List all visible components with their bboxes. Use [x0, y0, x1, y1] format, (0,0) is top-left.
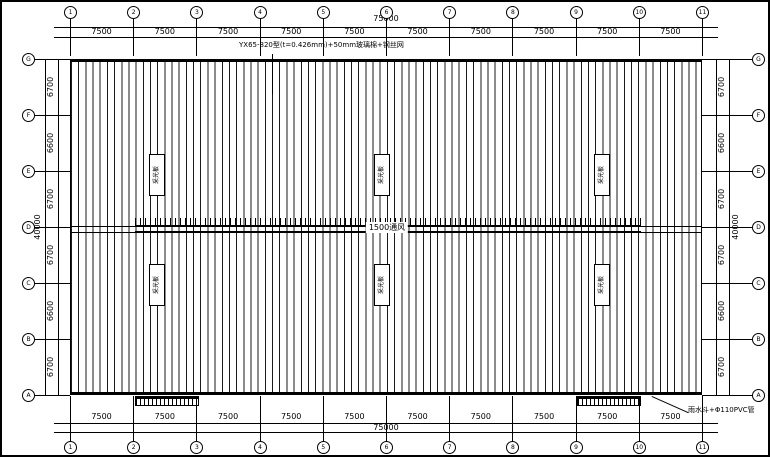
extension-line: [323, 18, 324, 56]
extension-line: [702, 227, 752, 228]
extension-line: [260, 18, 261, 56]
grid-bubble-right: F: [752, 109, 765, 122]
segment-dimension-right: 6700: [718, 77, 726, 97]
skylight-marker: 采光板: [149, 264, 165, 306]
extension-line: [702, 396, 703, 441]
segment-dimension-left: 6700: [47, 357, 55, 377]
skylight-marker-label: 采光板: [154, 276, 160, 294]
extension-line: [70, 18, 71, 56]
bay-dimension-bottom: 7500: [218, 413, 238, 421]
segment-dimension-left: 6600: [47, 301, 55, 321]
grid-bubble-bottom: 10: [633, 441, 646, 454]
bay-dimension-top: 7500: [534, 28, 554, 36]
grid-bubble-left: F: [22, 109, 35, 122]
ridge-vent-label: 1500通风: [366, 222, 408, 233]
grid-bubble-left: B: [22, 333, 35, 346]
roof-panel-area: 1500通风: [70, 59, 702, 395]
extension-line: [323, 396, 324, 441]
grid-bubble-right: G: [752, 53, 765, 66]
grid-bubble-left: A: [22, 389, 35, 402]
bay-dimension-top: 7500: [155, 28, 175, 36]
segment-dimension-left: 6700: [47, 77, 55, 97]
segment-dimension-right: 6600: [718, 133, 726, 153]
extension-line: [512, 396, 513, 441]
grid-bubble-right: C: [752, 277, 765, 290]
grid-bubble-left: G: [22, 53, 35, 66]
segment-dimension-right: 6600: [718, 301, 726, 321]
grid-bubble-bottom: 6: [380, 441, 393, 454]
grid-bubble-top: 10: [633, 6, 646, 19]
extension-line: [449, 396, 450, 441]
segment-dimension-right: 6700: [718, 245, 726, 265]
extension-line: [576, 18, 577, 56]
extension-line: [449, 18, 450, 56]
extension-line: [576, 396, 577, 441]
skylight-marker-label: 采光板: [154, 166, 160, 184]
grid-bubble-top: 6: [380, 6, 393, 19]
bay-dimension-bottom: 7500: [155, 413, 175, 421]
extension-line: [35, 339, 70, 340]
skylight-marker: 采光板: [374, 264, 390, 306]
bay-dimension-top: 7500: [597, 28, 617, 36]
bay-dimension-bottom: 7500: [660, 413, 680, 421]
grid-bubble-bottom: 5: [317, 441, 330, 454]
extension-line: [386, 18, 387, 56]
extension-line: [386, 396, 387, 441]
bay-dimension-bottom: 7500: [471, 413, 491, 421]
extension-line: [196, 396, 197, 441]
bay-dimension-bottom: 7500: [344, 413, 364, 421]
downpipe-note: 雨水斗+Φ110PVC管: [688, 406, 755, 414]
extension-line: [260, 396, 261, 441]
extension-line: [639, 396, 640, 441]
extension-line: [133, 396, 134, 441]
skylight-marker-label: 采光板: [379, 166, 385, 184]
segment-dimension-left: 6700: [47, 245, 55, 265]
skylight-marker: 采光板: [149, 154, 165, 196]
segment-dimension-right: 6700: [718, 189, 726, 209]
grid-bubble-bottom: 11: [696, 441, 709, 454]
segment-dimension-left: 6700: [47, 189, 55, 209]
skylight-marker: 采光板: [594, 264, 610, 306]
bay-dimension-bottom: 7500: [407, 413, 427, 421]
bay-dimension-top: 7500: [91, 28, 111, 36]
grid-bubble-top: 7: [443, 6, 456, 19]
leader-line: [652, 396, 689, 413]
roof-spec-note: YX65-820型(t=0.426mm)+50mm玻璃棉+钢丝网: [239, 41, 404, 49]
skylight-marker: 采光板: [594, 154, 610, 196]
extension-line: [35, 171, 70, 172]
grid-bubble-top: 9: [570, 6, 583, 19]
grid-bubble-bottom: 1: [64, 441, 77, 454]
skylight-marker-label: 采光板: [599, 276, 605, 294]
extension-line: [639, 18, 640, 56]
extension-line: [35, 59, 70, 60]
extension-line: [133, 18, 134, 56]
bay-dimension-top: 7500: [660, 28, 680, 36]
bay-dimension-top: 7500: [218, 28, 238, 36]
grid-bubble-top: 1: [64, 6, 77, 19]
segment-dimension-left: 6600: [47, 133, 55, 153]
bay-dimension-bottom: 7500: [281, 413, 301, 421]
roof-plan-drawing: 1500通风 YX65-820型(t=0.426mm)+50mm玻璃棉+钢丝网 …: [0, 0, 770, 457]
bay-dimension-top: 7500: [344, 28, 364, 36]
extension-line: [702, 171, 752, 172]
extension-line: [702, 18, 703, 56]
skylight-marker-label: 采光板: [379, 276, 385, 294]
grid-bubble-right: D: [752, 221, 765, 234]
segment-dimension-right: 6700: [718, 357, 726, 377]
skylight-marker-label: 采光板: [599, 166, 605, 184]
extension-line: [702, 283, 752, 284]
grid-bubble-bottom: 8: [506, 441, 519, 454]
grid-bubble-bottom: 3: [190, 441, 203, 454]
grid-bubble-top: 11: [696, 6, 709, 19]
grid-bubble-left: D: [22, 221, 35, 234]
grid-bubble-top: 8: [506, 6, 519, 19]
canopy-hatch-left: [135, 396, 199, 406]
grid-bubble-left: E: [22, 165, 35, 178]
grid-bubble-bottom: 9: [570, 441, 583, 454]
extension-line: [512, 18, 513, 56]
extension-line: [702, 395, 752, 396]
extension-line: [70, 396, 71, 441]
skylight-marker: 采光板: [374, 154, 390, 196]
grid-bubble-right: E: [752, 165, 765, 178]
extension-line: [702, 115, 752, 116]
grid-bubble-right: A: [752, 389, 765, 402]
grid-bubble-top: 3: [190, 6, 203, 19]
bay-dimension-bottom: 7500: [597, 413, 617, 421]
bay-dimension-bottom: 7500: [91, 413, 111, 421]
extension-line: [196, 18, 197, 56]
extension-line: [35, 395, 70, 396]
leader-line: [272, 54, 273, 94]
extension-line: [702, 339, 752, 340]
grid-bubble-top: 5: [317, 6, 330, 19]
grid-bubble-left: C: [22, 277, 35, 290]
bay-dimension-bottom: 7500: [534, 413, 554, 421]
extension-line: [35, 227, 70, 228]
extension-line: [35, 115, 70, 116]
grid-bubble-bottom: 7: [443, 441, 456, 454]
grid-bubble-right: B: [752, 333, 765, 346]
grid-bubble-bottom: 4: [254, 441, 267, 454]
bay-dimension-top: 7500: [281, 28, 301, 36]
bay-dimension-top: 7500: [471, 28, 491, 36]
bay-dimension-top: 7500: [407, 28, 427, 36]
grid-bubble-top: 2: [127, 6, 140, 19]
extension-line: [702, 59, 752, 60]
canopy-hatch-right: [577, 396, 641, 406]
extension-line: [35, 283, 70, 284]
grid-bubble-top: 4: [254, 6, 267, 19]
grid-bubble-bottom: 2: [127, 441, 140, 454]
